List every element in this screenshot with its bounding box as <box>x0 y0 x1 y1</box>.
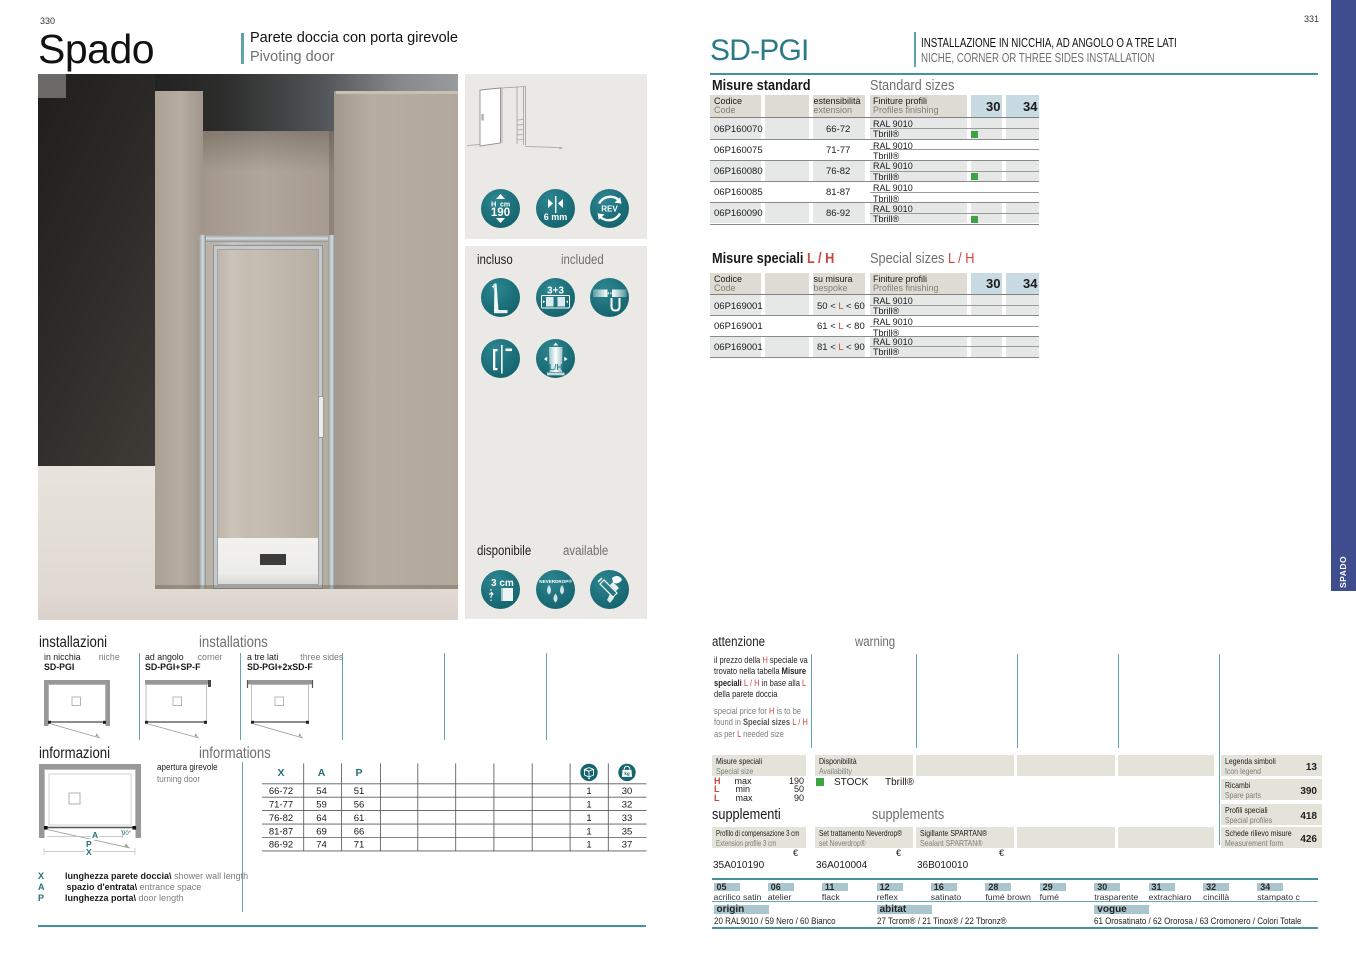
svg-text:1: 1 <box>586 799 591 810</box>
svg-text:64: 64 <box>316 813 327 824</box>
svg-text:56: 56 <box>354 799 365 810</box>
svg-text:61: 61 <box>354 813 365 824</box>
svg-text:1: 1 <box>586 813 591 824</box>
svg-text:81-87: 81-87 <box>269 826 293 837</box>
svg-text:X: X <box>277 767 284 779</box>
svg-text:69: 69 <box>316 826 327 837</box>
svg-text:35: 35 <box>622 826 633 837</box>
svg-text:NEVERDROP®: NEVERDROP® <box>539 578 572 584</box>
svg-text:66: 66 <box>354 826 365 837</box>
svg-text:32: 32 <box>622 799 633 810</box>
svg-text:76-82: 76-82 <box>269 813 293 824</box>
svg-text:1: 1 <box>586 840 591 851</box>
svg-text:66-72: 66-72 <box>269 786 293 797</box>
svg-text:REV: REV <box>601 205 618 214</box>
svg-text:L/H: L/H <box>549 362 563 372</box>
svg-text:1: 1 <box>586 826 591 837</box>
svg-text:33: 33 <box>622 813 633 824</box>
svg-text:59: 59 <box>316 799 327 810</box>
svg-text:3 cm: 3 cm <box>491 578 514 589</box>
svg-text:190: 190 <box>491 207 510 219</box>
svg-text:74: 74 <box>316 840 327 851</box>
svg-text:1: 1 <box>586 786 591 797</box>
svg-text:30: 30 <box>622 786 633 797</box>
svg-text:P: P <box>355 767 362 779</box>
svg-text:37: 37 <box>622 840 633 851</box>
svg-text:kg: kg <box>624 771 630 776</box>
svg-text:71: 71 <box>354 840 365 851</box>
svg-text:A: A <box>318 767 326 779</box>
svg-text:90°: 90° <box>122 831 132 837</box>
svg-text:6 mm: 6 mm <box>544 212 568 222</box>
svg-text:54: 54 <box>316 786 327 797</box>
svg-text:3+3: 3+3 <box>547 286 564 297</box>
svg-text:71-77: 71-77 <box>269 799 293 810</box>
svg-text:86-92: 86-92 <box>269 840 293 851</box>
svg-text:51: 51 <box>354 786 365 797</box>
